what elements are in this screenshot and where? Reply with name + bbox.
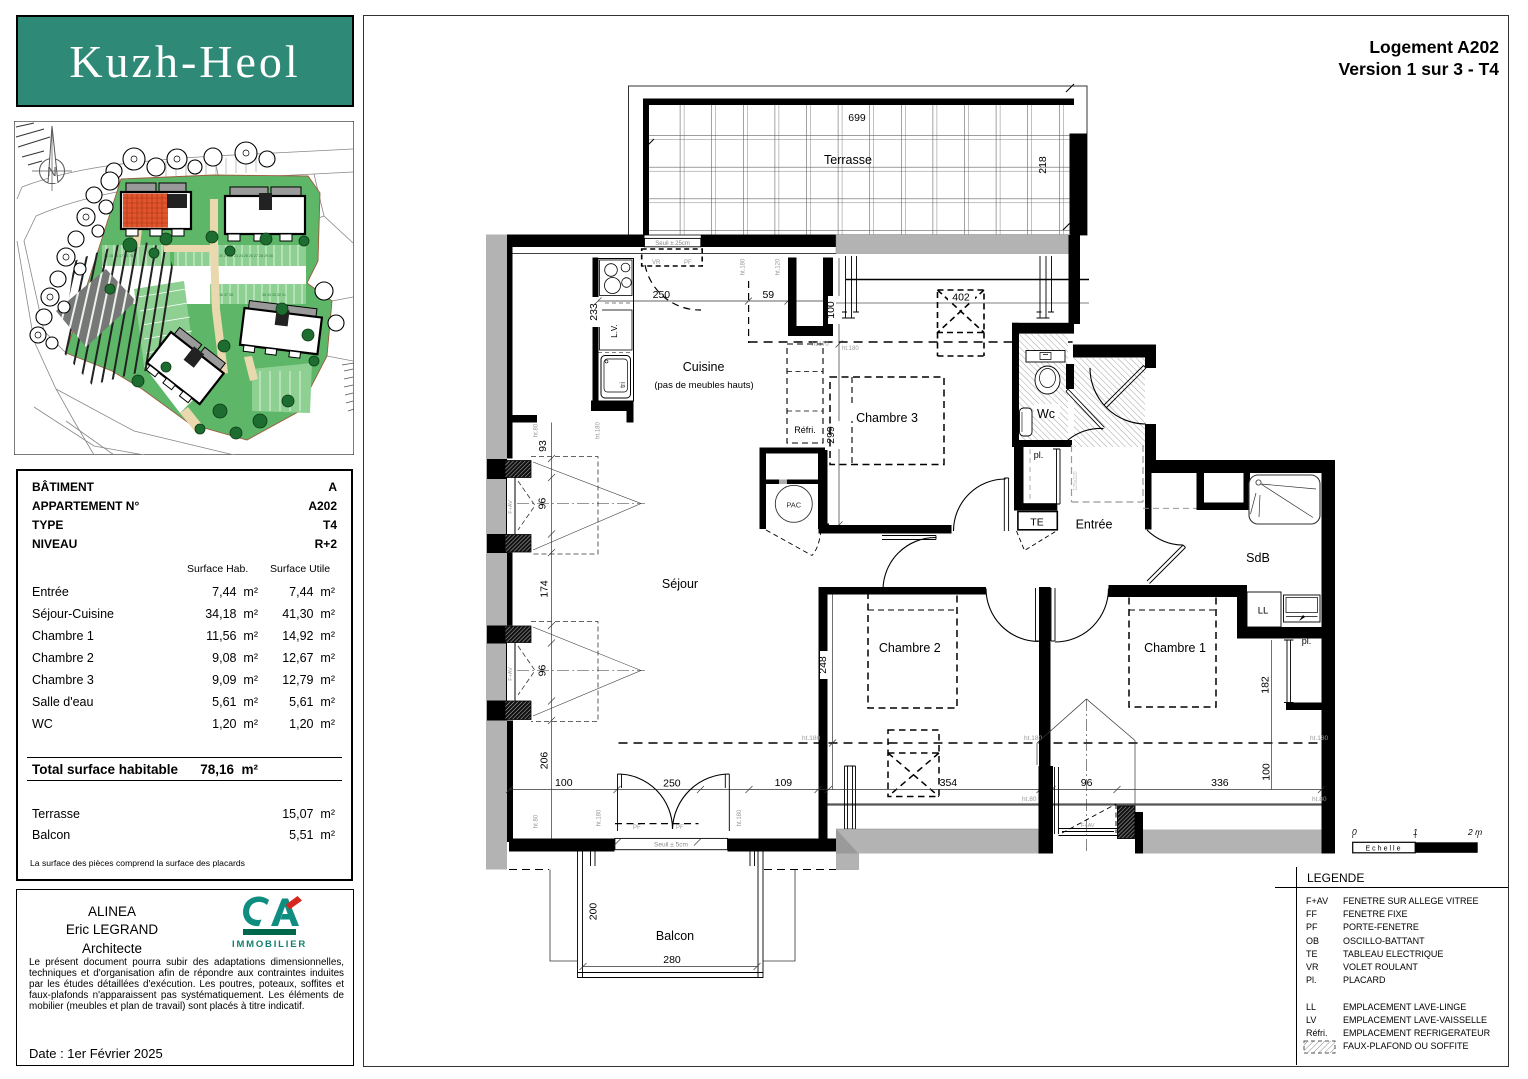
svg-text:206: 206 bbox=[539, 752, 551, 770]
svg-text:Chambre 2: Chambre 2 bbox=[879, 641, 941, 655]
svg-text:200: 200 bbox=[588, 903, 600, 921]
svg-text:402: 402 bbox=[952, 292, 970, 304]
svg-text:2 m: 2 m bbox=[1467, 827, 1482, 837]
svg-text:109: 109 bbox=[775, 777, 793, 789]
svg-text:Réfri.: Réfri. bbox=[794, 425, 816, 435]
svg-text:354: 354 bbox=[940, 777, 958, 789]
svg-text:299: 299 bbox=[825, 426, 837, 444]
svg-text:182: 182 bbox=[1260, 676, 1272, 694]
svg-text:PF: PF bbox=[676, 825, 684, 831]
svg-text:SdB: SdB bbox=[1246, 551, 1270, 565]
svg-text:ht.170: ht.170 bbox=[812, 342, 829, 348]
svg-text:125x220: 125x220 bbox=[1073, 471, 1079, 490]
svg-text:Cuisine: Cuisine bbox=[683, 360, 725, 374]
svg-text:233: 233 bbox=[588, 303, 600, 321]
svg-text:ht.180: ht.180 bbox=[737, 809, 743, 826]
svg-text:34 15 16 17 45 75: 34 15 16 17 45 75 bbox=[104, 254, 133, 258]
svg-text:N: N bbox=[47, 164, 56, 179]
svg-text:Balcon: Balcon bbox=[656, 929, 694, 943]
svg-text:LL: LL bbox=[1258, 606, 1269, 617]
svg-text:19 20 21 22 23 24 25 26 27 28: 19 20 21 22 23 24 25 26 27 28 29 30 bbox=[214, 254, 273, 258]
svg-text:F+AV: F+AV bbox=[508, 667, 514, 681]
svg-text:ht.80: ht.80 bbox=[533, 423, 539, 437]
svg-text:ht.180: ht.180 bbox=[842, 346, 859, 352]
svg-text:93: 93 bbox=[537, 440, 549, 452]
svg-text:100: 100 bbox=[555, 777, 573, 789]
svg-text:(pas de meubles hauts): (pas de meubles hauts) bbox=[654, 380, 753, 391]
svg-text:Séjour: Séjour bbox=[662, 577, 698, 591]
svg-text:tri: tri bbox=[620, 382, 627, 388]
svg-text:336: 336 bbox=[1211, 777, 1229, 789]
svg-text:100: 100 bbox=[1260, 763, 1272, 781]
svg-text:VR: VR bbox=[652, 260, 661, 266]
svg-text:pl.: pl. bbox=[1302, 636, 1312, 646]
svg-text:TE: TE bbox=[1030, 517, 1043, 529]
svg-text:0: 0 bbox=[1352, 827, 1357, 837]
svg-text:174: 174 bbox=[539, 580, 551, 598]
svg-text:ht.80: ht.80 bbox=[1312, 796, 1327, 803]
svg-text:Entrée: Entrée bbox=[1076, 518, 1113, 532]
svg-text:Wc: Wc bbox=[1037, 407, 1055, 421]
svg-text:248: 248 bbox=[817, 656, 829, 674]
svg-text:96: 96 bbox=[537, 665, 549, 677]
svg-text:1: 1 bbox=[1413, 827, 1418, 837]
svg-text:PF: PF bbox=[633, 825, 641, 831]
svg-text:250: 250 bbox=[663, 778, 681, 790]
svg-text:F+AV: F+AV bbox=[508, 500, 514, 514]
svg-text:250: 250 bbox=[653, 289, 671, 301]
svg-text:ht.120: ht.120 bbox=[776, 258, 782, 275]
svg-text:ht.180: ht.180 bbox=[1310, 735, 1328, 742]
svg-text:F+AV: F+AV bbox=[1081, 823, 1095, 829]
svg-text:59: 59 bbox=[762, 289, 774, 301]
svg-text:Echelle: Echelle bbox=[1366, 846, 1403, 853]
svg-text:96: 96 bbox=[537, 498, 549, 510]
svg-text:ht.80: ht.80 bbox=[533, 814, 539, 828]
svg-text:pl.: pl. bbox=[1034, 450, 1044, 460]
svg-text:PF: PF bbox=[684, 260, 692, 266]
svg-text:Terrasse: Terrasse bbox=[824, 153, 872, 167]
svg-text:218: 218 bbox=[1037, 156, 1049, 174]
svg-text:699: 699 bbox=[848, 112, 866, 124]
svg-text:ht.180: ht.180 bbox=[596, 809, 602, 826]
svg-text:ht.180: ht.180 bbox=[596, 421, 602, 438]
svg-text:Chambre 3: Chambre 3 bbox=[856, 411, 918, 425]
svg-text:PAC: PAC bbox=[786, 501, 801, 510]
svg-text:35 34 33 32 31: 35 34 33 32 31 bbox=[262, 293, 286, 297]
svg-text:ht.180: ht.180 bbox=[740, 258, 746, 275]
svg-text:100: 100 bbox=[817, 765, 829, 783]
svg-text:280: 280 bbox=[663, 954, 681, 966]
svg-text:Seuil ± 5cm: Seuil ± 5cm bbox=[654, 842, 688, 849]
svg-text:Chambre 1: Chambre 1 bbox=[1144, 641, 1206, 655]
svg-text:100: 100 bbox=[825, 301, 837, 319]
svg-text:ht.80: ht.80 bbox=[1022, 796, 1037, 803]
svg-text:ht.180: ht.180 bbox=[802, 735, 820, 742]
svg-text:Seuil ± 25cm: Seuil ± 25cm bbox=[655, 241, 690, 247]
svg-text:L.V.: L.V. bbox=[610, 324, 619, 338]
